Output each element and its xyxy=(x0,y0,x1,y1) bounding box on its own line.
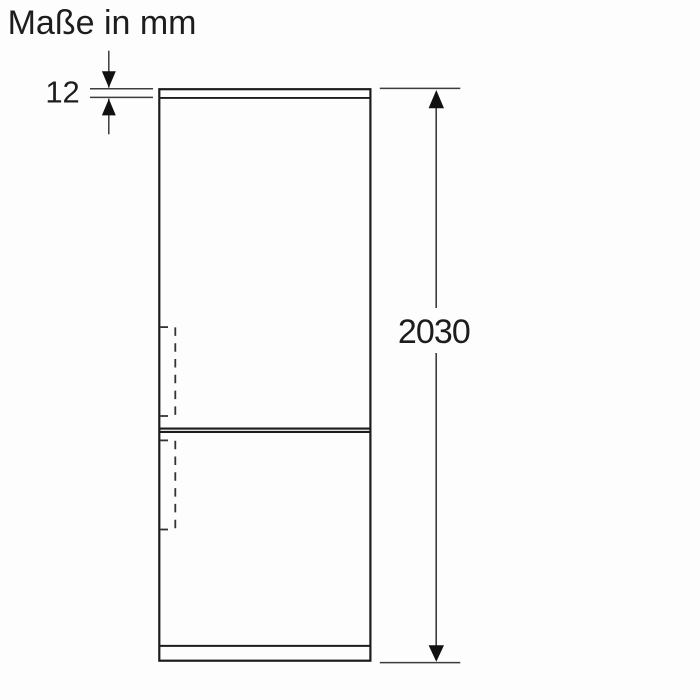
svg-text:Maße in mm: Maße in mm xyxy=(8,4,197,42)
svg-text:2030: 2030 xyxy=(398,313,470,351)
svg-text:12: 12 xyxy=(45,75,79,110)
